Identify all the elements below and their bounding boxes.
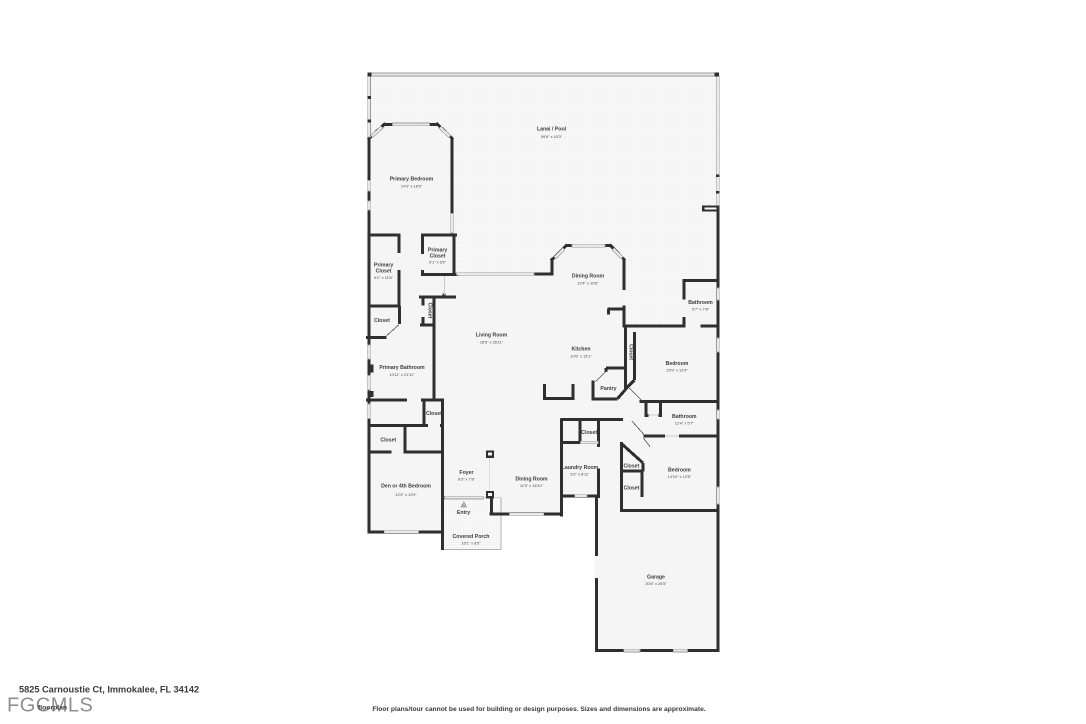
svg-text:5'7" x 7'8": 5'7" x 7'8" — [692, 307, 710, 312]
svg-text:5825 Carnoustie Ct, Immokalee,: 5825 Carnoustie Ct, Immokalee, FL 34142 — [19, 684, 199, 694]
svg-text:Bathroom: Bathroom — [688, 300, 713, 306]
svg-text:12'4" x 10'6": 12'4" x 10'6" — [577, 281, 599, 286]
svg-text:5'2" x 11'6": 5'2" x 11'6" — [374, 275, 394, 280]
svg-text:Laundry Room: Laundry Room — [562, 465, 599, 471]
svg-text:Bedroom: Bedroom — [668, 468, 691, 474]
svg-text:Dining Room: Dining Room — [572, 274, 605, 280]
svg-text:Bedroom: Bedroom — [666, 361, 689, 367]
svg-text:Pantry: Pantry — [600, 386, 616, 392]
svg-text:Bathroom: Bathroom — [672, 414, 697, 420]
svg-text:Closet: Closet — [426, 411, 442, 417]
svg-text:Kitchen: Kitchen — [571, 347, 590, 353]
svg-text:15'9" x 12'4": 15'9" x 12'4" — [666, 368, 688, 373]
svg-text:Primary Bedroom: Primary Bedroom — [390, 177, 434, 183]
svg-text:Foyer: Foyer — [459, 470, 473, 476]
svg-text:Closet: Closet — [628, 344, 634, 360]
svg-text:Closet: Closet — [376, 269, 392, 275]
svg-text:18'5" x 26'11": 18'5" x 26'11" — [480, 340, 504, 345]
svg-text:10'6" x 15'1": 10'6" x 15'1" — [570, 354, 592, 359]
svg-text:6'2" x 8'11": 6'2" x 8'11" — [571, 472, 591, 477]
svg-text:Closet: Closet — [581, 430, 597, 436]
svg-text:Closet: Closet — [380, 438, 396, 444]
svg-text:Garage: Garage — [647, 575, 665, 581]
svg-text:Living Room: Living Room — [476, 333, 508, 339]
svg-text:12'4" x 13'9": 12'4" x 13'9" — [395, 492, 417, 497]
svg-text:Dining Room: Dining Room — [515, 477, 548, 483]
svg-text:Den or 4th Bedroom: Den or 4th Bedroom — [381, 484, 431, 490]
svg-text:Lanai / Pool: Lanai / Pool — [537, 127, 567, 133]
svg-text:Closet: Closet — [374, 318, 390, 324]
svg-text:Primary Bathroom: Primary Bathroom — [379, 365, 425, 371]
svg-text:14'10" x 12'5": 14'10" x 12'5" — [668, 474, 692, 479]
svg-text:5'1" x 6'5": 5'1" x 6'5" — [429, 260, 447, 265]
svg-text:20'8" x 26'5": 20'8" x 26'5" — [645, 581, 667, 586]
svg-text:8'3" x 7'8": 8'3" x 7'8" — [458, 477, 476, 482]
svg-text:floorplan: floorplan — [38, 705, 67, 712]
svg-text:11'5" x 16'10": 11'5" x 16'10" — [520, 483, 544, 488]
svg-text:12'4" x 5'7": 12'4" x 5'7" — [675, 421, 695, 426]
svg-text:59'6" x 43'3": 59'6" x 43'3" — [541, 134, 563, 139]
svg-text:14'3" x 18'9": 14'3" x 18'9" — [401, 184, 423, 189]
svg-text:10'11" x 21'11": 10'11" x 21'11" — [389, 372, 415, 377]
svg-text:Entry: Entry — [457, 510, 470, 516]
svg-text:Closet: Closet — [624, 486, 640, 492]
svg-text:16'1" x 8'5": 16'1" x 8'5" — [461, 541, 481, 546]
svg-text:Closet: Closet — [623, 464, 639, 470]
svg-text:Floor plans/tour cannot be use: Floor plans/tour cannot be used for buil… — [372, 706, 705, 713]
svg-text:Closet: Closet — [427, 303, 433, 319]
svg-text:Covered Porch: Covered Porch — [453, 534, 490, 540]
